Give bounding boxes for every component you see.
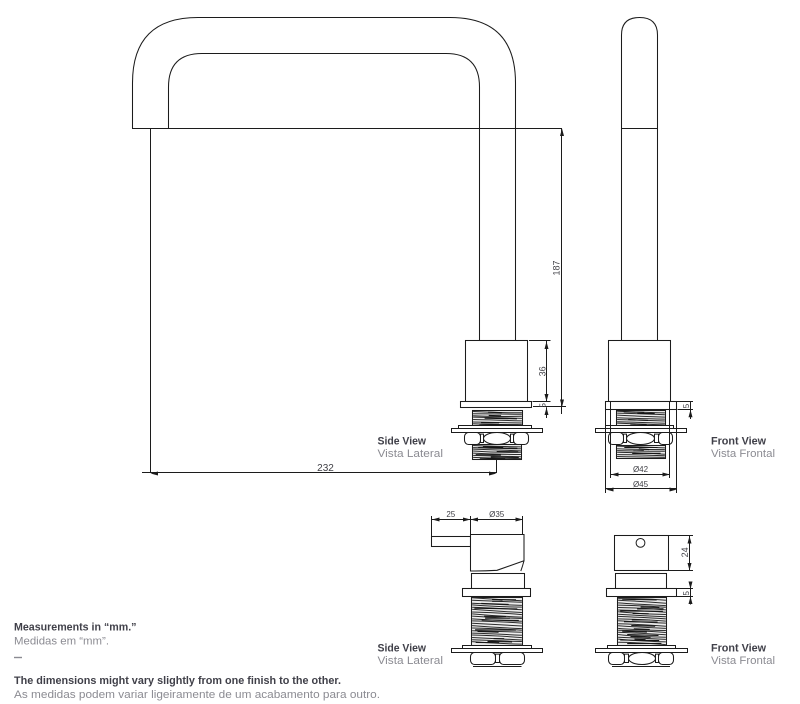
svg-text:Front View: Front View: [711, 436, 766, 448]
svg-text:Measurements in “mm.”: Measurements in “mm.”: [14, 621, 137, 633]
svg-text:5: 5: [682, 591, 691, 596]
svg-text:5: 5: [682, 403, 691, 408]
svg-text:Vista Frontal: Vista Frontal: [711, 448, 775, 460]
svg-text:5: 5: [539, 403, 548, 408]
svg-text:232: 232: [317, 463, 334, 474]
svg-text:Medidas em “mm”.: Medidas em “mm”.: [14, 635, 109, 647]
svg-text:24: 24: [680, 547, 690, 557]
svg-text:Ø45: Ø45: [633, 480, 649, 489]
svg-text:The dimensions might vary slig: The dimensions might vary slightly from …: [14, 675, 341, 687]
svg-text:36: 36: [538, 366, 548, 376]
svg-text:As medidas podem variar ligeir: As medidas podem variar ligeiramente de …: [14, 689, 380, 701]
svg-text:187: 187: [551, 260, 561, 275]
svg-text:Ø35: Ø35: [489, 510, 505, 519]
svg-text:Vista Frontal: Vista Frontal: [711, 655, 775, 667]
svg-text:Ø42: Ø42: [633, 465, 649, 474]
svg-text:Vista Lateral: Vista Lateral: [378, 655, 444, 667]
svg-text:Side View: Side View: [378, 643, 427, 655]
svg-text:Front View: Front View: [711, 643, 766, 655]
svg-text:Vista Lateral: Vista Lateral: [378, 448, 444, 460]
svg-text:25: 25: [446, 510, 455, 519]
svg-text:Side View: Side View: [378, 436, 427, 448]
